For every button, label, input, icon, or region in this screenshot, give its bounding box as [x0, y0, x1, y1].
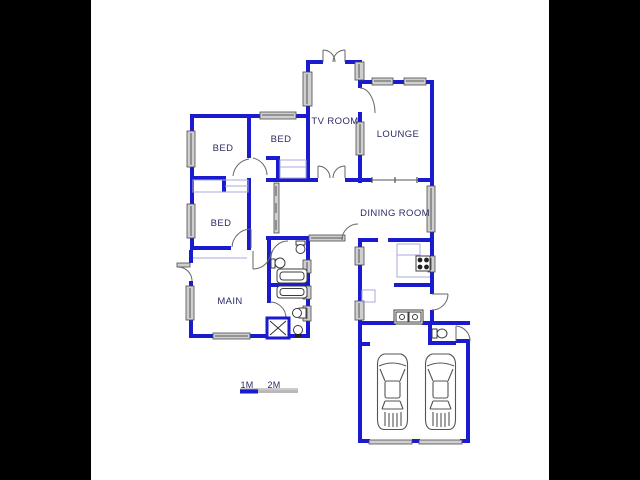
shower-icon — [267, 318, 289, 338]
room-label-bed-1: BED — [213, 143, 234, 154]
room-label-bed-2: BED — [271, 134, 292, 145]
toilet-icon — [296, 241, 305, 254]
room-label-tv-room: TV ROOM — [311, 116, 358, 127]
entry-step — [177, 263, 190, 267]
window-icon — [372, 78, 393, 85]
window-icon — [355, 247, 364, 265]
double-sink-icon — [394, 310, 423, 324]
bathtub-icon — [277, 269, 307, 283]
window-icon — [309, 235, 345, 241]
toilet-icon — [271, 258, 285, 268]
window-icon — [303, 72, 312, 106]
window-icon — [355, 62, 364, 80]
window-icon — [213, 333, 250, 339]
bathtub-icon — [277, 286, 307, 298]
floor-plan: TV ROOM LOUNGE BED BED BED DINING ROOM M… — [0, 0, 640, 480]
room-label-bed-3: BED — [211, 218, 232, 229]
scale-bar-blue-segment — [240, 390, 258, 394]
window-icon — [355, 301, 364, 320]
screen-wall — [274, 183, 279, 233]
window-icon — [404, 78, 426, 85]
wash-basin-icon — [293, 308, 307, 318]
window-icon — [186, 286, 194, 320]
stove-icon — [416, 256, 430, 271]
room-label-main: MAIN — [217, 296, 242, 307]
room-label-dining-room: DINING ROOM — [360, 208, 430, 219]
garage-door-icon — [369, 440, 412, 444]
garage-door-icon — [419, 440, 462, 444]
window-icon — [260, 112, 296, 119]
room-label-lounge: LOUNGE — [377, 129, 420, 140]
window-icon — [187, 204, 195, 238]
toilet-icon — [432, 329, 447, 338]
scale-bar-gray-segment — [258, 390, 298, 393]
floor-plan-page: TV ROOM LOUNGE BED BED BED DINING ROOM M… — [0, 0, 640, 480]
window-icon — [187, 131, 195, 167]
